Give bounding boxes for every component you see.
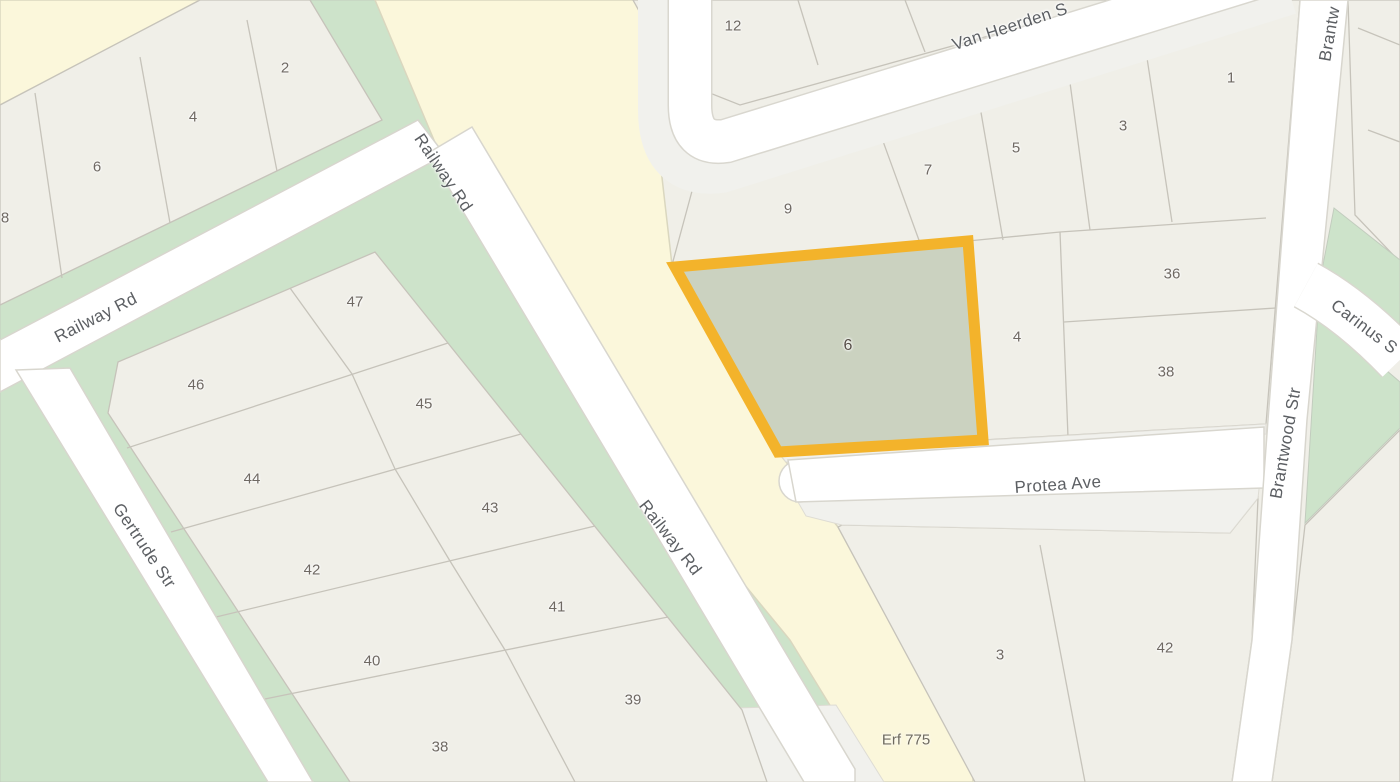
map-canvas[interactable]: Railway Rd Railway Rd Railway Rd Gertrud… — [0, 0, 1400, 782]
parcel-block-northeast[interactable] — [1348, 0, 1400, 262]
parcel-block-northeast-outline[interactable] — [1348, 0, 1400, 262]
map-layers — [0, 0, 1400, 782]
